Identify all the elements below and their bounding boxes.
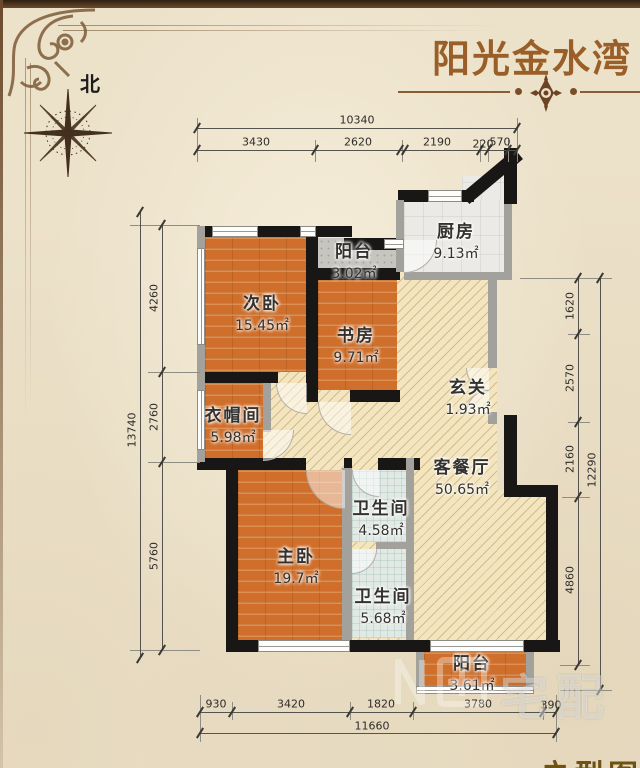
divider-dot xyxy=(515,88,522,95)
dim-label: 2760 xyxy=(148,403,161,431)
dim-line-right-segments xyxy=(578,278,579,665)
wall xyxy=(546,497,558,652)
dim-label: 4260 xyxy=(148,284,161,312)
dim-label: 1620 xyxy=(564,292,577,320)
room-label-master-bedroom: 主卧19.7㎡ xyxy=(273,542,318,588)
wall xyxy=(197,372,278,383)
dim-label: 12290 xyxy=(586,453,599,488)
divider-dot xyxy=(570,88,577,95)
dim-label: 1820 xyxy=(367,698,395,711)
window xyxy=(428,190,462,202)
divider-ornament xyxy=(528,74,564,112)
dim-line-left-segments xyxy=(162,225,163,650)
window xyxy=(384,239,404,249)
room-label-balcony-top: 阳台3.02㎡ xyxy=(331,237,376,283)
window xyxy=(197,248,205,345)
wall xyxy=(517,485,558,497)
dim-label: 3430 xyxy=(242,136,270,149)
dim-extension xyxy=(148,372,200,373)
room-label-foyer: 玄关1.93㎡ xyxy=(445,373,490,419)
dim-label: 13740 xyxy=(126,413,139,448)
wall-secondary xyxy=(396,200,404,272)
room-label-living-dining: 客餐厅50.65㎡ xyxy=(434,453,491,499)
compass-rose-icon xyxy=(23,88,113,178)
window xyxy=(300,226,316,237)
window xyxy=(212,226,258,237)
dim-label: 2160 xyxy=(564,445,577,473)
dim-label: 10340 xyxy=(340,114,375,127)
room-label-study: 书房9.71㎡ xyxy=(333,321,378,367)
wall xyxy=(226,640,258,652)
frame-line xyxy=(58,25,618,26)
dim-label: 2570 xyxy=(564,364,577,392)
wall-secondary xyxy=(263,383,271,432)
dim-label: 4860 xyxy=(564,566,577,594)
living-dining-floor xyxy=(497,490,550,648)
dim-tick xyxy=(136,652,144,663)
left-border-edge xyxy=(0,0,3,768)
dim-label: 570 xyxy=(490,136,511,149)
room-label-bathroom-2: 卫生间5.68㎡ xyxy=(355,582,412,628)
dim-label: 3420 xyxy=(277,698,305,711)
dim-line-bottom-total xyxy=(200,733,556,734)
wall xyxy=(504,148,517,204)
dim-label: 930 xyxy=(206,698,227,711)
wall xyxy=(306,237,318,402)
wall xyxy=(226,458,238,652)
title-divider xyxy=(580,91,640,93)
wall-secondary xyxy=(504,204,512,272)
room-label-secondary-bedroom: 次卧15.45㎡ xyxy=(235,289,289,335)
dim-line-right-total xyxy=(600,278,601,690)
dim-line-left-total xyxy=(140,212,141,658)
watermark-logo-icon xyxy=(392,650,497,710)
dim-label: 5760 xyxy=(148,542,161,570)
dim-label: 11660 xyxy=(355,720,390,733)
dim-label: 2190 xyxy=(423,136,451,149)
room-label-bathroom-1: 卫生间4.58㎡ xyxy=(353,494,410,540)
watermark-text: 宅配 xyxy=(500,658,612,728)
title-divider xyxy=(398,91,510,93)
room-label-cloakroom: 衣帽间5.98㎡ xyxy=(205,401,262,447)
wall xyxy=(504,415,517,497)
dim-line-top-segments xyxy=(197,150,517,151)
wall-secondary xyxy=(488,278,497,368)
dim-line-top-total xyxy=(197,128,517,129)
floorplan-page: 阳光金水湾 北 xyxy=(0,0,640,768)
dim-extension xyxy=(148,462,200,463)
wall-secondary xyxy=(348,542,352,549)
wall xyxy=(350,390,400,402)
room-label-kitchen: 厨房9.13㎡ xyxy=(433,217,478,263)
caption-partial: 户型图 xyxy=(540,751,640,768)
dim-label: 2620 xyxy=(344,136,372,149)
window xyxy=(258,640,350,652)
dim-extension xyxy=(200,695,201,742)
wall-secondary xyxy=(376,542,406,549)
